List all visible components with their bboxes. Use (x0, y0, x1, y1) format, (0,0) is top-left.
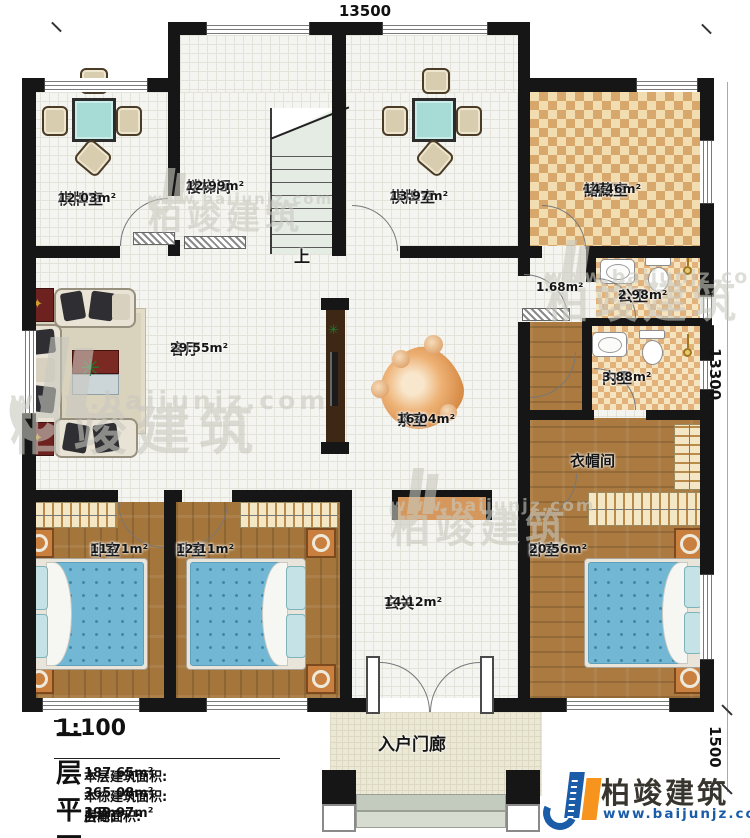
brand-logo: 柏竣建筑 www.baijunjz.com (543, 768, 743, 834)
wall-segment (310, 22, 382, 35)
wall-segment (400, 246, 518, 258)
drain-stem (687, 334, 689, 348)
plant-icon: ✳ (80, 356, 100, 380)
wardrobe (26, 502, 118, 528)
mahjong-table (72, 98, 116, 142)
wall-segment (22, 490, 118, 502)
cushion (112, 294, 130, 320)
wardrobe (588, 492, 704, 526)
tv-wall-cap (321, 298, 349, 310)
door-threshold (133, 232, 175, 245)
chair (42, 106, 68, 136)
plan-scale: 1:100 (56, 716, 126, 741)
plant-icon: ✳ (328, 324, 339, 337)
sink-icon (592, 332, 627, 357)
wall-segment (518, 322, 530, 698)
wall-segment (168, 92, 180, 196)
toilet-icon (642, 340, 663, 365)
window (22, 330, 36, 414)
dimension-right: 13300 (706, 348, 724, 406)
wall-segment (586, 258, 596, 282)
toilet-tank-icon (645, 257, 671, 266)
entry-door-leaf (480, 656, 494, 714)
dimension-line (727, 82, 728, 710)
wall-segment (180, 22, 206, 35)
window (566, 698, 670, 712)
toilet-tank-icon (639, 330, 665, 339)
wall-segment (332, 35, 346, 256)
cushion (92, 422, 120, 453)
floor-drain-icon (683, 348, 692, 357)
wall-segment (530, 246, 542, 258)
porch-step (356, 794, 506, 811)
wardrobe (240, 502, 338, 528)
chair (422, 68, 450, 94)
dimension-porch: 1500 (706, 726, 724, 770)
pillow (286, 614, 306, 658)
wall-segment (518, 35, 530, 276)
wall-segment (340, 490, 352, 698)
chair (456, 106, 482, 136)
window (700, 574, 714, 660)
cushion (62, 422, 90, 454)
chair (116, 106, 142, 136)
porch-step (356, 811, 506, 828)
shoe-cabinet-fill (398, 497, 486, 520)
cushion (60, 290, 87, 321)
pebble (392, 350, 410, 368)
window (42, 698, 140, 712)
dimension-tick (701, 24, 712, 35)
nightstand (306, 664, 336, 694)
entry-door-leaf (366, 656, 380, 714)
floor-drain-icon (683, 266, 692, 275)
floor-plan: ✳ ✦ ✦ ✳ (0, 0, 750, 838)
pillow (286, 566, 306, 610)
window (700, 140, 714, 204)
title-block: 一层平面图 1:100 本层建筑面积: 187.65m² 本栋建筑面积: 365… (40, 714, 340, 824)
brand-logo-icon (543, 770, 603, 832)
door-threshold (184, 236, 246, 249)
title-underline (54, 758, 280, 759)
wall-segment (168, 22, 180, 92)
window (382, 22, 488, 35)
wall-segment (582, 326, 592, 410)
door-threshold (522, 308, 570, 321)
window (44, 78, 148, 92)
porch-column (506, 770, 540, 804)
porch-column-base (506, 804, 540, 832)
brand-url: www.baijunjz.com (603, 806, 750, 822)
window (636, 78, 698, 92)
tv-icon (330, 352, 338, 406)
wall-segment (22, 246, 120, 258)
mahjong-table (412, 98, 456, 142)
wall-segment (530, 410, 594, 420)
dimension-tick (51, 22, 62, 33)
pebble (424, 335, 443, 354)
tv-wall-cap (321, 442, 349, 454)
window (206, 22, 310, 35)
wall-segment (164, 490, 176, 698)
chair (382, 106, 408, 136)
window (206, 698, 308, 712)
wall-segment (232, 490, 340, 502)
wall-segment (586, 246, 712, 258)
wall-segment (646, 410, 712, 420)
nightstand (306, 528, 336, 558)
plan-title-row: 一层平面图 1:100 (54, 716, 62, 722)
pebble (371, 380, 389, 398)
wall-segment (582, 318, 712, 326)
dimension-top: 13500 (330, 2, 400, 20)
